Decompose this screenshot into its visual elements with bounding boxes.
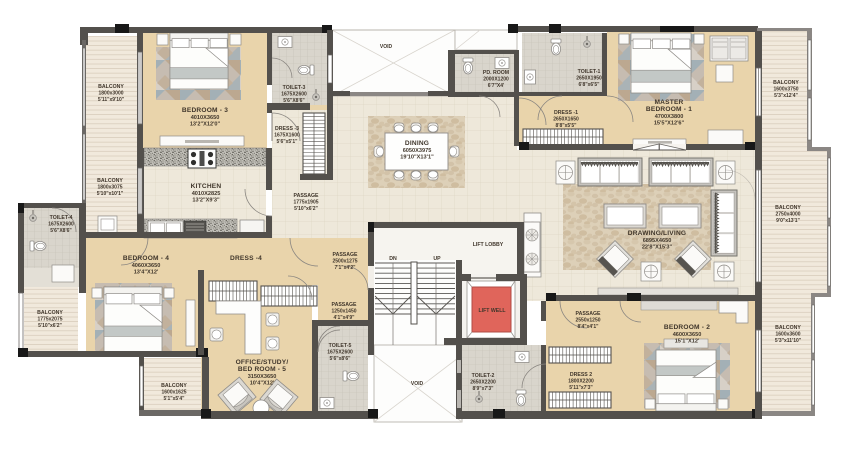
svg-text:BALCONY: BALCONY (98, 84, 124, 90)
svg-text:2000X1200: 2000X1200 (483, 76, 509, 82)
svg-text:DRAWING/LIVING: DRAWING/LIVING (628, 230, 686, 237)
svg-text:DRESS -4: DRESS -4 (230, 255, 262, 262)
svg-text:1675X1600: 1675X1600 (274, 132, 300, 138)
svg-text:TOILET-4: TOILET-4 (50, 215, 73, 221)
svg-text:1775x1905: 1775x1905 (293, 199, 318, 205)
svg-text:1600x3750: 1600x3750 (773, 86, 798, 92)
svg-text:BALCONY: BALCONY (773, 80, 799, 86)
svg-text:5'6"X8'6": 5'6"X8'6" (50, 228, 72, 234)
svg-text:5'11"x7'3": 5'11"x7'3" (569, 385, 593, 391)
svg-text:2650X2200: 2650X2200 (470, 379, 496, 385)
svg-text:8'4"x4'1": 8'4"x4'1" (577, 324, 599, 330)
svg-text:TOILET-5: TOILET-5 (329, 343, 352, 349)
svg-text:VOID: VOID (380, 44, 393, 50)
svg-text:PASSAGE: PASSAGE (576, 311, 602, 317)
svg-text:2500x1275: 2500x1275 (332, 258, 357, 264)
svg-text:19'10"X13'1": 19'10"X13'1" (400, 154, 434, 160)
svg-text:5'3"x11'10": 5'3"x11'10" (775, 338, 802, 344)
svg-text:2650X1950: 2650X1950 (576, 75, 602, 81)
svg-text:13'2"X9'3": 13'2"X9'3" (192, 197, 220, 203)
svg-text:LIFT WELL: LIFT WELL (478, 308, 506, 314)
svg-text:5'10"x6'2": 5'10"x6'2" (38, 323, 62, 329)
svg-text:4700X3800: 4700X3800 (655, 114, 684, 120)
svg-text:PASSAGE: PASSAGE (333, 252, 359, 258)
svg-text:TOILET-1: TOILET-1 (578, 69, 601, 75)
svg-text:13'2"X12'0": 13'2"X12'0" (190, 121, 221, 127)
svg-text:BEDROOM - 4: BEDROOM - 4 (123, 255, 169, 262)
svg-text:2550x1250: 2550x1250 (575, 317, 600, 323)
svg-text:7'1"x4'2": 7'1"x4'2" (334, 265, 356, 271)
svg-text:15'1"X12': 15'1"X12' (675, 338, 700, 344)
svg-text:DRESS -3: DRESS -3 (275, 126, 299, 132)
svg-text:BALCONY: BALCONY (775, 205, 801, 211)
svg-text:8'9"x7'3": 8'9"x7'3" (472, 386, 494, 392)
svg-text:5'6"X8'6": 5'6"X8'6" (283, 98, 305, 104)
svg-text:BEDROOM - 1: BEDROOM - 1 (646, 106, 692, 113)
svg-text:2750x4000: 2750x4000 (775, 211, 800, 217)
svg-text:1800x3075: 1800x3075 (97, 184, 122, 190)
svg-text:1675X2600: 1675X2600 (48, 221, 74, 227)
svg-text:1675X2600: 1675X2600 (281, 91, 307, 97)
svg-text:DRESS 2: DRESS 2 (570, 372, 592, 378)
svg-text:10'4"X12': 10'4"X12' (250, 380, 275, 386)
svg-text:KITCHEN: KITCHEN (191, 183, 222, 190)
svg-text:6'8"x6'5": 6'8"x6'5" (578, 82, 600, 88)
svg-text:PASSAGE: PASSAGE (332, 302, 358, 308)
svg-text:5'3"x12'4": 5'3"x12'4" (774, 93, 798, 99)
svg-text:1600x3600: 1600x3600 (775, 331, 800, 337)
svg-text:1775x2075: 1775x2075 (37, 316, 62, 322)
svg-text:1800x3000: 1800x3000 (98, 90, 123, 96)
svg-text:BALCONY: BALCONY (97, 178, 123, 184)
svg-text:5'6"x5'1": 5'6"x5'1" (276, 139, 298, 145)
svg-text:LIFT LOBBY: LIFT LOBBY (473, 242, 504, 248)
svg-text:1800X2200: 1800X2200 (568, 378, 594, 384)
svg-text:1675X2600: 1675X2600 (327, 349, 353, 355)
svg-text:9'0"x13'1": 9'0"x13'1" (776, 218, 800, 224)
svg-text:5'10"x10'1": 5'10"x10'1" (97, 191, 124, 197)
svg-text:BED ROOM - 5: BED ROOM - 5 (238, 366, 286, 373)
svg-text:2650X1650: 2650X1650 (553, 116, 579, 122)
svg-text:4600X3650: 4600X3650 (673, 332, 702, 338)
svg-text:TOILET-3: TOILET-3 (283, 85, 306, 91)
svg-text:VOID: VOID (411, 381, 424, 387)
svg-text:BEDROOM - 3: BEDROOM - 3 (182, 107, 228, 114)
svg-text:BALCONY: BALCONY (37, 310, 63, 316)
svg-text:BEDROOM - 2: BEDROOM - 2 (664, 324, 710, 331)
svg-text:5'1"x5'4": 5'1"x5'4" (163, 396, 185, 402)
svg-text:PD. ROOM: PD. ROOM (483, 70, 509, 76)
svg-text:MASTER: MASTER (654, 99, 683, 106)
svg-text:5'6"x8'6": 5'6"x8'6" (329, 356, 351, 362)
svg-text:DRESS -1: DRESS -1 (554, 110, 578, 116)
svg-text:1600x1625: 1600x1625 (161, 389, 186, 395)
svg-text:OFFICE/STUDY/: OFFICE/STUDY/ (236, 359, 289, 366)
svg-text:13'4"X12': 13'4"X12' (134, 269, 159, 275)
svg-text:6'7"X4': 6'7"X4' (488, 83, 504, 89)
svg-text:15'5"X12'6": 15'5"X12'6" (654, 120, 685, 126)
svg-text:1250x1450: 1250x1450 (331, 308, 356, 314)
svg-text:4010X3650: 4010X3650 (191, 115, 220, 121)
svg-text:8'8"x5'5": 8'8"x5'5" (555, 123, 577, 129)
svg-text:DN: DN (389, 256, 397, 262)
svg-text:4'1"x4'9": 4'1"x4'9" (333, 315, 355, 321)
svg-text:4060X3650: 4060X3650 (132, 263, 161, 269)
svg-text:5'10"x6'2": 5'10"x6'2" (294, 206, 318, 212)
svg-text:5'11"x9'10": 5'11"x9'10" (98, 97, 125, 103)
svg-text:DINING: DINING (405, 140, 429, 147)
svg-text:3150X3650: 3150X3650 (248, 374, 277, 380)
svg-text:6050X3975: 6050X3975 (403, 148, 432, 154)
svg-text:4010X2825: 4010X2825 (192, 191, 221, 197)
svg-text:22'8"X15'3": 22'8"X15'3" (642, 244, 673, 250)
svg-text:PASSAGE: PASSAGE (294, 193, 320, 199)
svg-text:TOILET-2: TOILET-2 (472, 373, 495, 379)
svg-text:BALCONY: BALCONY (775, 325, 801, 331)
svg-text:BALCONY: BALCONY (161, 383, 187, 389)
svg-text:UP: UP (433, 256, 441, 262)
svg-text:6895X4650: 6895X4650 (643, 238, 672, 244)
